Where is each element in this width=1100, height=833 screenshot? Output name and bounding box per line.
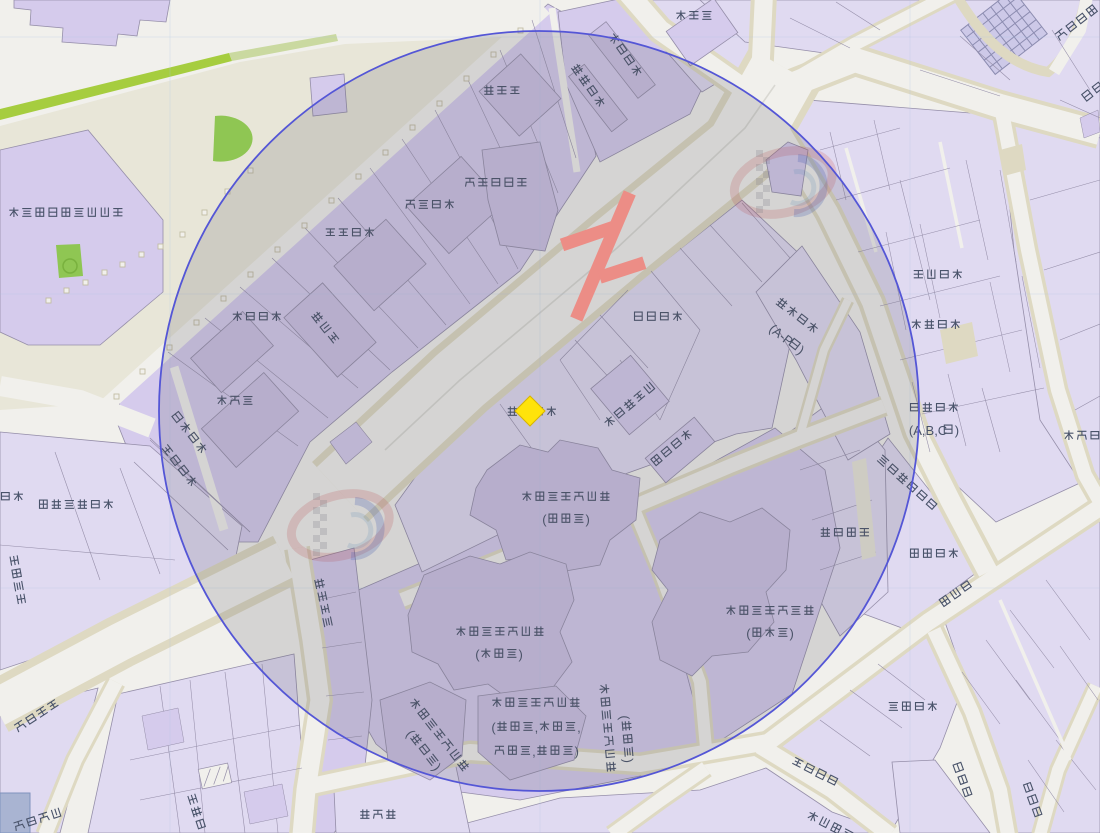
svg-text:): )	[955, 423, 959, 438]
